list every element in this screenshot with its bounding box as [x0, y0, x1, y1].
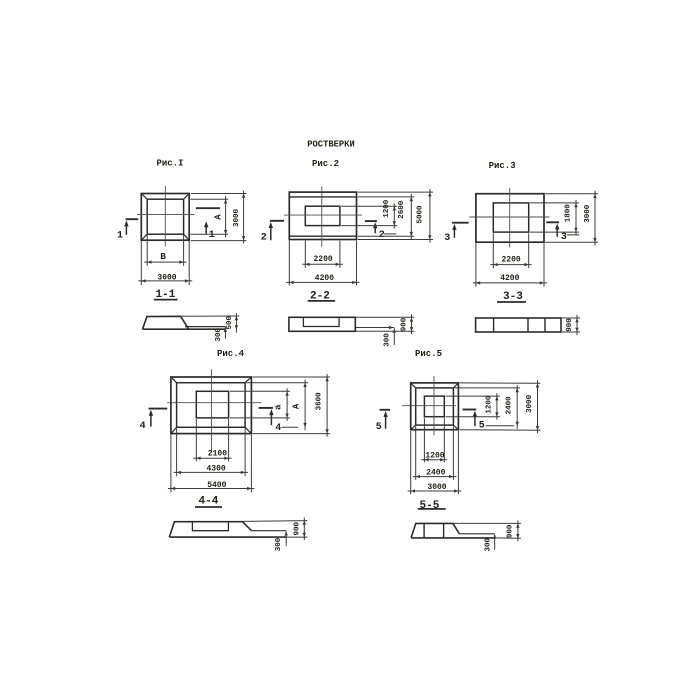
svg-text:1800: 1800	[565, 204, 573, 223]
svg-text:300: 300	[215, 328, 223, 342]
svg-text:1200: 1200	[485, 395, 493, 414]
svg-text:Рис.5: Рис.5	[415, 349, 442, 359]
svg-text:3000: 3000	[584, 204, 592, 223]
svg-text:2: 2	[261, 233, 267, 244]
svg-text:2600: 2600	[398, 200, 406, 219]
svg-text:а: а	[273, 404, 283, 410]
svg-text:В: В	[160, 251, 166, 262]
svg-text:2200: 2200	[314, 255, 333, 264]
svg-text:1200: 1200	[425, 451, 444, 460]
svg-text:4300: 4300	[207, 465, 226, 474]
svg-text:3000: 3000	[157, 273, 176, 282]
svg-text:5400: 5400	[207, 481, 226, 490]
svg-text:3: 3	[561, 232, 567, 243]
svg-text:1: 1	[209, 230, 215, 241]
svg-text:900: 900	[401, 317, 409, 331]
svg-text:2400: 2400	[505, 396, 513, 415]
svg-text:5000: 5000	[417, 205, 425, 224]
svg-text:А: А	[291, 403, 301, 409]
svg-text:3000: 3000	[526, 394, 534, 413]
svg-text:300: 300	[275, 537, 283, 551]
svg-text:А: А	[214, 214, 224, 220]
svg-text:900: 900	[507, 524, 515, 538]
svg-text:4-4: 4-4	[199, 496, 219, 508]
svg-text:РОСТВЕРКИ: РОСТВЕРКИ	[307, 140, 355, 150]
svg-text:2200: 2200	[502, 256, 521, 265]
svg-text:Рис.4: Рис.4	[217, 349, 245, 359]
svg-text:1200: 1200	[383, 199, 391, 218]
svg-text:Рис.2: Рис.2	[312, 159, 339, 169]
svg-text:300: 300	[484, 538, 492, 552]
svg-text:500: 500	[226, 316, 234, 330]
svg-text:5-5: 5-5	[420, 500, 440, 512]
svg-text:3600: 3600	[316, 392, 324, 411]
svg-text:4: 4	[275, 423, 281, 434]
svg-text:3000: 3000	[427, 483, 446, 492]
svg-text:300: 300	[384, 333, 392, 347]
svg-text:Рис.I: Рис.I	[157, 159, 184, 169]
svg-text:4200: 4200	[500, 274, 519, 283]
svg-text:Рис.3: Рис.3	[489, 161, 516, 171]
svg-text:3: 3	[444, 233, 450, 244]
svg-text:900: 900	[566, 318, 574, 332]
svg-text:4200: 4200	[315, 274, 334, 283]
svg-text:1: 1	[117, 231, 123, 242]
svg-text:5: 5	[376, 422, 382, 433]
svg-text:2400: 2400	[426, 468, 445, 477]
svg-text:2100: 2100	[208, 450, 227, 459]
svg-text:900: 900	[294, 522, 302, 536]
svg-text:3000: 3000	[233, 209, 241, 228]
svg-text:4: 4	[140, 421, 146, 432]
